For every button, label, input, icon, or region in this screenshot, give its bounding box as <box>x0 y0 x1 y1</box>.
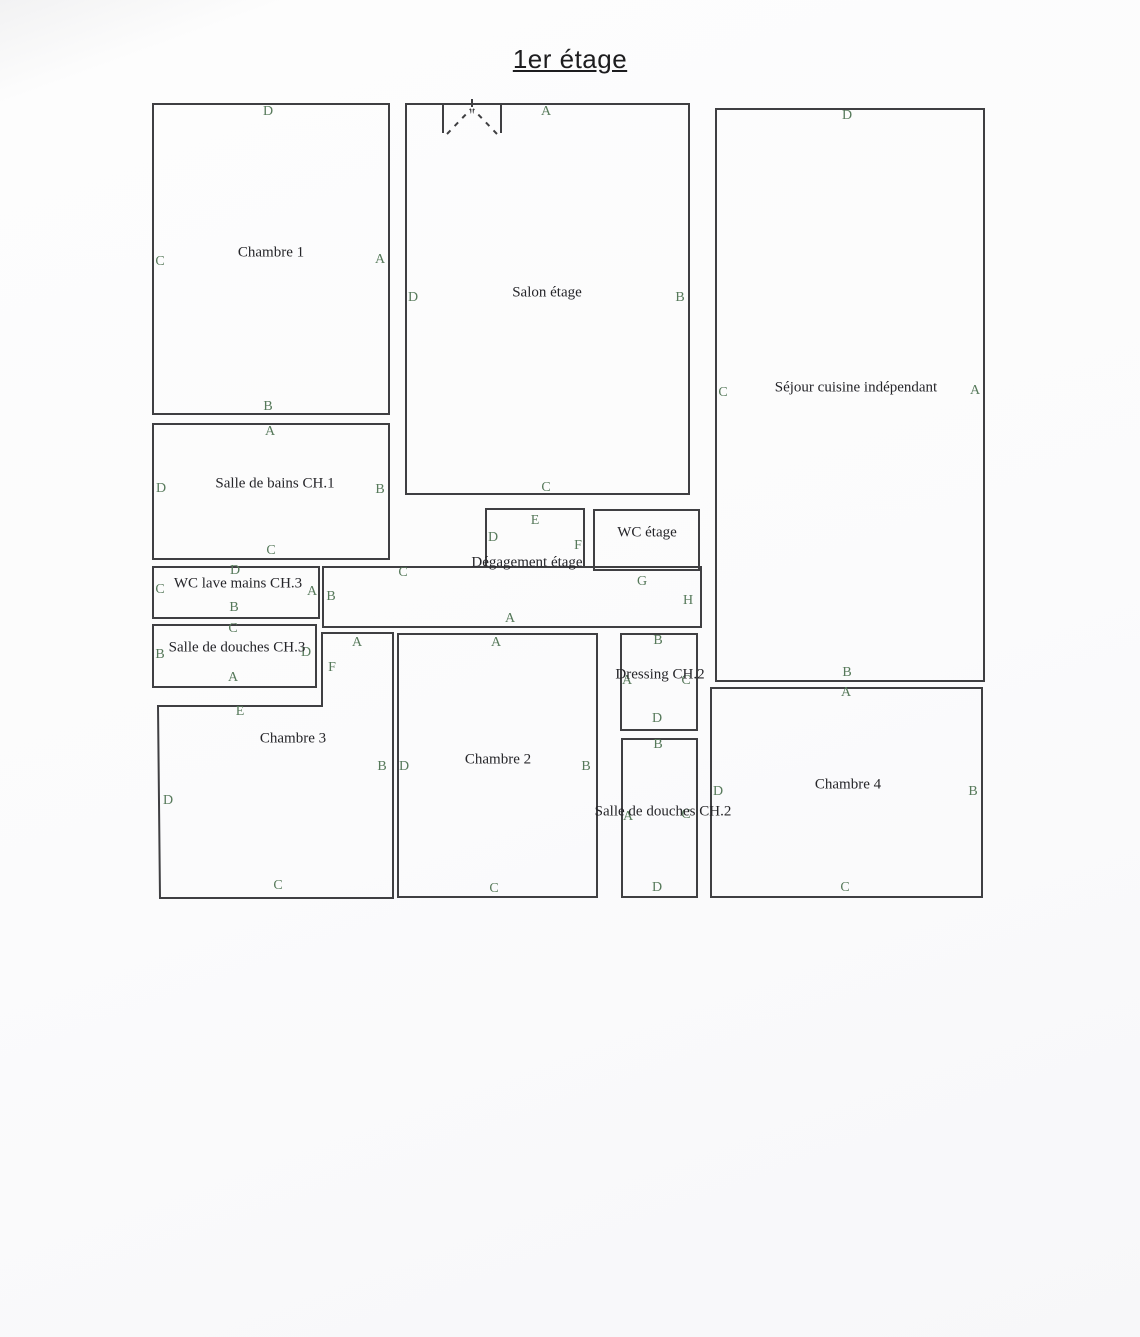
wall-letter-degagement-etage-h: H <box>683 593 693 609</box>
room-label-salle-de-douches-ch2: Salle de douches CH.2 <box>595 804 732 821</box>
room-label-sejour-cuisine-independant: Séjour cuisine indépendant <box>775 380 937 397</box>
room-label-wc-etage: WC étage <box>617 525 677 542</box>
wall-letter-sejour-cuisine-independant-a: A <box>970 383 980 399</box>
wall-letter-sejour-cuisine-independant-d: D <box>842 108 852 124</box>
wall-letter-chambre-3-b: B <box>377 759 386 775</box>
wall-letter-salon-etage-a: A <box>541 104 551 120</box>
wall-letter-wc-lave-mains-ch3-b: B <box>229 600 238 616</box>
wall-letter-chambre-1-b: B <box>263 399 272 415</box>
room-label-wc-lave-mains-ch3: WC lave mains CH.3 <box>174 576 302 593</box>
double-door-swing-icon <box>447 109 471 134</box>
wall-letter-degagement-etage-notch-d: D <box>488 530 498 546</box>
wall-letter-degagement-etage-notch-e: E <box>531 513 540 529</box>
wall-letter-wc-lave-mains-ch3-c: C <box>155 582 164 598</box>
wall-letter-wc-lave-mains-ch3-a: A <box>307 584 317 600</box>
wall-letter-salle-de-douches-ch3-b: B <box>155 647 164 663</box>
wall-letter-salle-de-douches-ch2-b: B <box>653 737 662 753</box>
room-label-chambre-1: Chambre 1 <box>238 245 304 262</box>
room-label-salon-etage: Salon étage <box>512 285 582 302</box>
wall-letter-chambre-2-c: C <box>489 881 498 897</box>
wall-letter-chambre-4-b: B <box>968 784 977 800</box>
room-label-chambre-4: Chambre 4 <box>815 777 881 794</box>
document-page: 1er étage "Chambre 1DCABSalon étageADBCS… <box>0 0 1140 1337</box>
wall-letter-chambre-1-d: D <box>263 104 273 120</box>
room-label-salle-de-douches-ch3: Salle de douches CH.3 <box>169 640 306 657</box>
wall-letter-degagement-etage-g: G <box>637 574 647 590</box>
wall-letter-dressing-ch2-b: B <box>653 633 662 649</box>
wall-letter-salle-de-bains-ch1-a: A <box>265 424 275 440</box>
wall-letter-salon-etage-b: B <box>675 290 684 306</box>
wall-letter-chambre-3-c: C <box>273 878 282 894</box>
wall-letter-chambre-2-d: D <box>399 759 409 775</box>
double-door-swing-icon <box>473 109 497 134</box>
wall-letter-chambre-3-e: E <box>236 704 245 720</box>
wall-letter-salle-de-douches-ch3-c: C <box>228 621 237 637</box>
wall-letter-sejour-cuisine-independant-b: B <box>842 665 851 681</box>
wall-letter-chambre-3-d: D <box>163 793 173 809</box>
room-label-chambre-3: Chambre 3 <box>260 731 326 748</box>
wall-letter-sejour-cuisine-independant-c: C <box>718 385 727 401</box>
wall-letter-degagement-etage-b: B <box>326 589 335 605</box>
wall-letter-chambre-1-c: C <box>155 254 164 270</box>
wall-letter-salle-de-bains-ch1-b: B <box>375 482 384 498</box>
wall-letter-chambre-4-c: C <box>840 880 849 896</box>
room-label-degagement-etage: Dégagement étage <box>471 555 582 572</box>
wall-letter-chambre-3-a: A <box>352 635 362 651</box>
floor-plan: "Chambre 1DCABSalon étageADBCSéjour cuis… <box>0 0 1140 1337</box>
wall-letter-salon-etage-c: C <box>541 480 550 496</box>
room-label-dressing-ch2: Dressing CH.2 <box>615 667 704 684</box>
plan-lines-layer: " <box>0 0 1140 1337</box>
room-chambre-3 <box>158 633 393 898</box>
wall-letter-salon-etage-d: D <box>408 290 418 306</box>
wall-letter-degagement-etage-a: A <box>505 611 515 627</box>
wall-letter-chambre-2-a: A <box>491 635 501 651</box>
wall-letter-dressing-ch2-d: D <box>652 711 662 727</box>
wall-letter-degagement-etage-notch-f: F <box>574 538 582 554</box>
wall-letter-chambre-4-a: A <box>841 685 851 701</box>
wall-letter-chambre-1-a: A <box>375 252 385 268</box>
wall-letter-salle-de-douches-ch2-d: D <box>652 880 662 896</box>
room-label-salle-de-bains-ch1: Salle de bains CH.1 <box>215 476 334 493</box>
door-quote-mark: " <box>469 107 474 122</box>
room-label-chambre-2: Chambre 2 <box>465 752 531 769</box>
wall-letter-chambre-3-f: F <box>328 660 336 676</box>
wall-letter-chambre-2-b: B <box>581 759 590 775</box>
wall-letter-degagement-etage-c: C <box>398 565 407 581</box>
wall-letter-salle-de-bains-ch1-c: C <box>266 543 275 559</box>
wall-letter-chambre-4-d: D <box>713 784 723 800</box>
wall-letter-salle-de-bains-ch1-d: D <box>156 481 166 497</box>
wall-letter-salle-de-douches-ch3-a: A <box>228 670 238 686</box>
